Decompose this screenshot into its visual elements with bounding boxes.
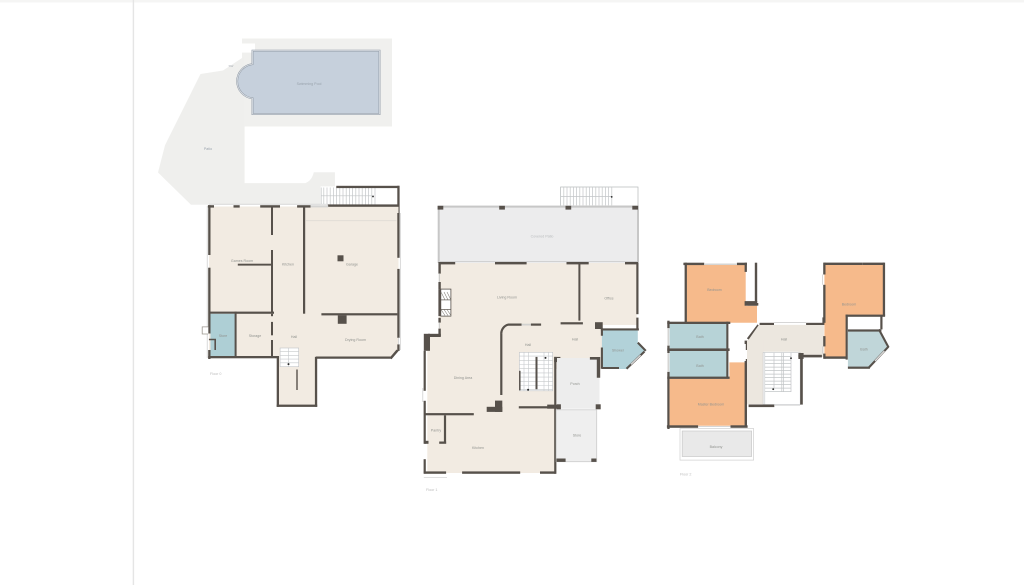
svg-text:Hall: Hall [781, 338, 787, 342]
svg-text:SW: SW [229, 64, 234, 68]
svg-text:Pantry: Pantry [431, 429, 442, 433]
svg-text:Covered Patio: Covered Patio [531, 235, 554, 239]
svg-text:Bedroom: Bedroom [842, 303, 857, 307]
svg-text:Floor 2: Floor 2 [680, 473, 691, 477]
svg-text:Balcony: Balcony [710, 445, 723, 449]
svg-text:Kitchen: Kitchen [282, 263, 294, 267]
svg-text:Bath: Bath [696, 364, 703, 368]
svg-text:Hall: Hall [525, 343, 531, 347]
svg-text:Hall: Hall [291, 335, 297, 339]
svg-text:Dining Area: Dining Area [454, 376, 473, 380]
svg-text:Kitchen: Kitchen [472, 446, 484, 450]
svg-text:Store: Store [219, 334, 228, 338]
svg-text:Floor 0: Floor 0 [210, 372, 221, 376]
svg-text:Garage: Garage [346, 263, 358, 267]
svg-text:Living Room: Living Room [497, 296, 517, 300]
svg-text:Bedroom: Bedroom [707, 288, 722, 292]
svg-text:Games Room: Games Room [231, 259, 253, 263]
svg-text:Drying Room: Drying Room [345, 338, 366, 342]
svg-text:Porch: Porch [570, 382, 579, 386]
svg-text:Master Bedroom: Master Bedroom [698, 403, 725, 407]
svg-text:Bath: Bath [860, 348, 867, 352]
svg-text:Bath: Bath [696, 335, 703, 339]
svg-text:Swimming Pool: Swimming Pool [297, 82, 322, 86]
svg-text:Hall: Hall [572, 338, 578, 342]
svg-text:Office: Office [604, 297, 613, 301]
svg-text:Storage: Storage [249, 334, 262, 338]
svg-text:Shower: Shower [612, 349, 625, 353]
svg-text:Floor 1: Floor 1 [426, 488, 437, 492]
svg-text:Store: Store [573, 434, 582, 438]
svg-text:Patio: Patio [204, 147, 212, 151]
